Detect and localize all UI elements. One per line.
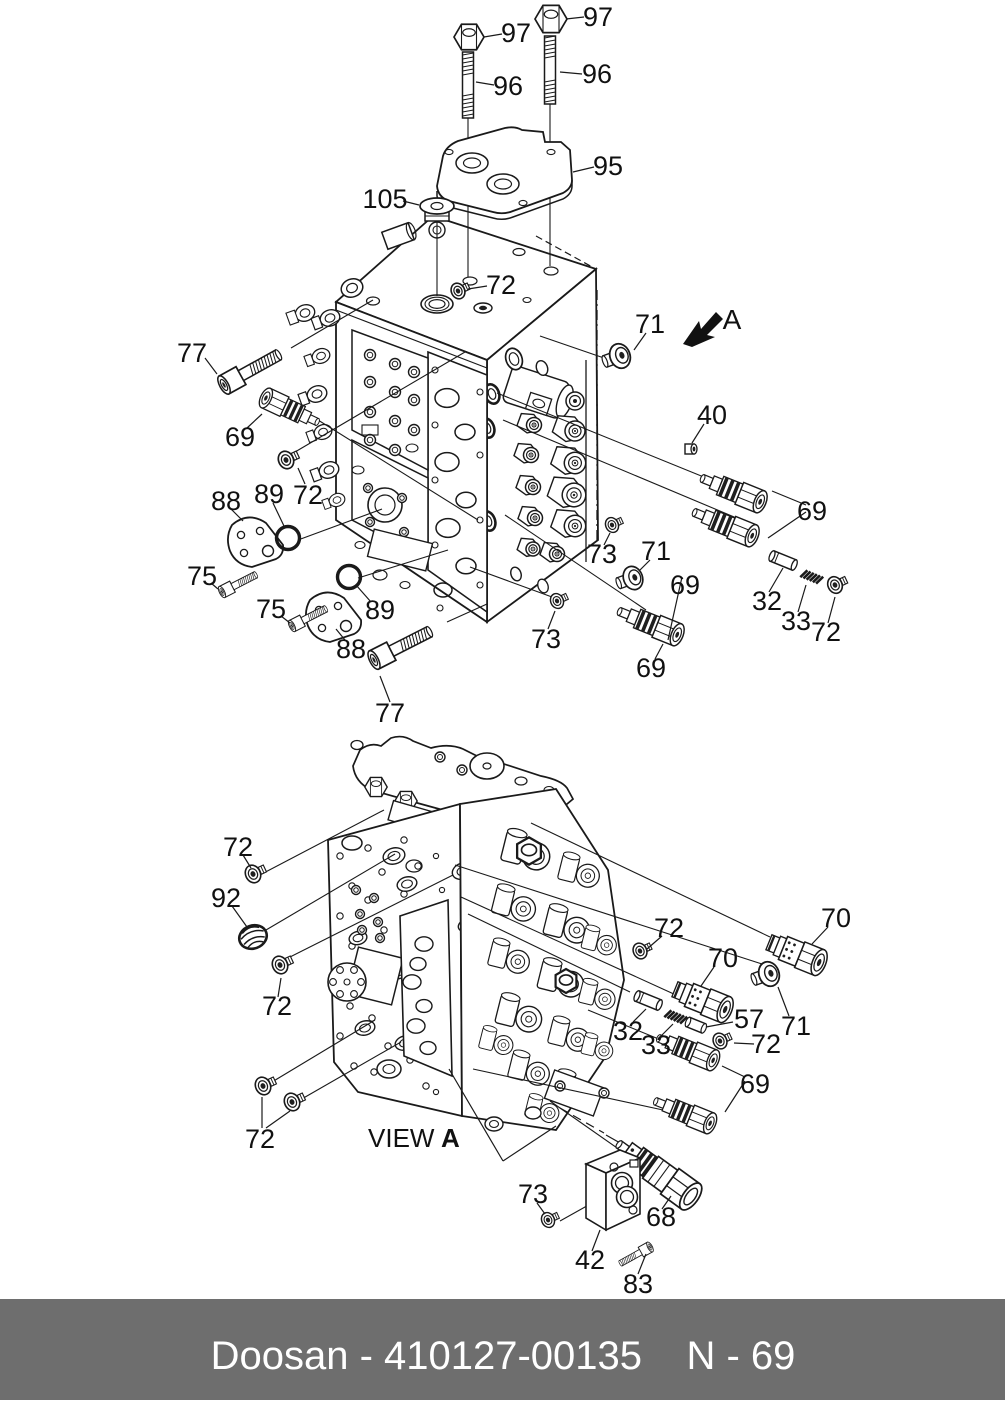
svg-text:72: 72	[751, 1029, 781, 1059]
svg-text:40: 40	[697, 400, 727, 430]
svg-text:72: 72	[486, 270, 516, 300]
svg-text:70: 70	[821, 903, 851, 933]
svg-text:96: 96	[582, 59, 612, 89]
svg-text:33: 33	[641, 1030, 671, 1060]
svg-text:75: 75	[187, 561, 217, 591]
svg-text:72: 72	[654, 913, 684, 943]
svg-text:96: 96	[493, 71, 523, 101]
svg-text:73: 73	[587, 539, 617, 569]
svg-text:89: 89	[365, 595, 395, 625]
svg-text:88: 88	[336, 634, 366, 664]
svg-text:97: 97	[501, 18, 531, 48]
svg-text:72: 72	[293, 480, 323, 510]
svg-text:68: 68	[646, 1202, 676, 1232]
svg-text:83: 83	[623, 1269, 653, 1299]
svg-text:69: 69	[797, 496, 827, 526]
svg-text:73: 73	[531, 624, 561, 654]
svg-text:73: 73	[518, 1179, 548, 1209]
svg-text:97: 97	[583, 2, 613, 32]
svg-text:Doosan - 410127-00135 N - 6: Doosan - 410127-00135 N - 69	[211, 1334, 796, 1378]
svg-text:71: 71	[641, 536, 671, 566]
svg-text:71: 71	[781, 1011, 811, 1041]
svg-text:92: 92	[211, 883, 241, 913]
svg-text:A: A	[441, 1123, 460, 1153]
svg-text:95: 95	[593, 151, 623, 181]
svg-text:69: 69	[225, 422, 255, 452]
svg-text:89: 89	[254, 479, 284, 509]
svg-text:69: 69	[670, 570, 700, 600]
svg-text:A: A	[723, 304, 742, 335]
svg-text:72: 72	[811, 617, 841, 647]
svg-text:75: 75	[256, 594, 286, 624]
svg-text:VIEW: VIEW	[368, 1123, 435, 1153]
svg-text:42: 42	[575, 1245, 605, 1275]
svg-text:77: 77	[375, 698, 405, 728]
svg-text:77: 77	[177, 338, 207, 368]
svg-text:72: 72	[223, 832, 253, 862]
svg-text:32: 32	[613, 1016, 643, 1046]
svg-text:105: 105	[362, 184, 407, 214]
svg-text:72: 72	[245, 1124, 275, 1154]
svg-text:69: 69	[740, 1069, 770, 1099]
svg-text:72: 72	[262, 991, 292, 1021]
svg-text:32: 32	[752, 586, 782, 616]
svg-text:33: 33	[781, 606, 811, 636]
svg-text:69: 69	[636, 653, 666, 683]
svg-text:70: 70	[708, 943, 738, 973]
svg-text:88: 88	[211, 486, 241, 516]
svg-text:71: 71	[635, 309, 665, 339]
